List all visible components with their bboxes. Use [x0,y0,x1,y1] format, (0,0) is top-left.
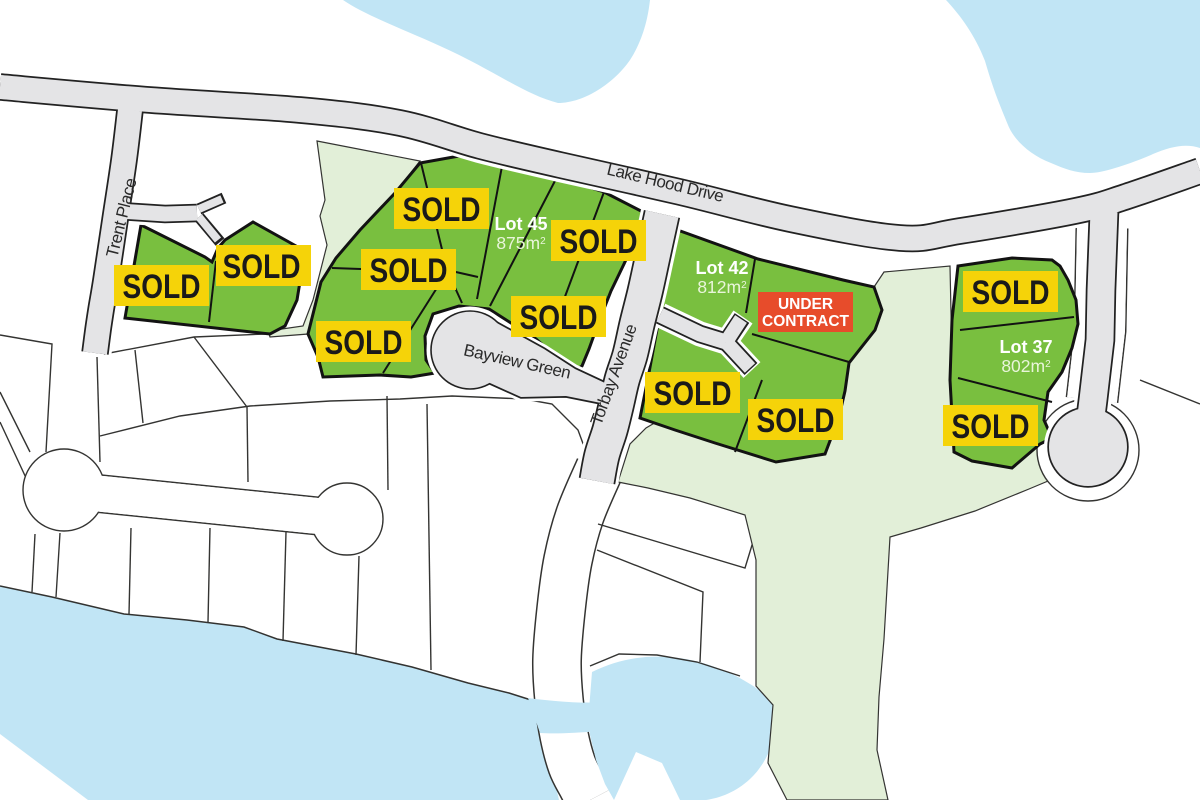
svg-text:SOLD: SOLD [654,375,732,413]
svg-text:SOLD: SOLD [560,223,638,261]
svg-text:875m2: 875m2 [496,233,546,253]
svg-text:CONTRACT: CONTRACT [762,313,849,330]
svg-text:Lot 37: Lot 37 [999,337,1052,357]
svg-text:SOLD: SOLD [972,274,1050,312]
svg-text:Lot 42: Lot 42 [695,258,748,278]
svg-text:SOLD: SOLD [123,268,201,306]
svg-text:SOLD: SOLD [520,299,598,337]
svg-text:SOLD: SOLD [223,248,301,286]
svg-text:SOLD: SOLD [325,324,403,362]
svg-text:SOLD: SOLD [403,191,481,229]
svg-text:802m2: 802m2 [1001,356,1051,376]
svg-text:UNDER: UNDER [778,296,833,313]
svg-text:Lot 45: Lot 45 [494,214,547,234]
svg-text:SOLD: SOLD [757,402,835,440]
svg-text:SOLD: SOLD [952,408,1030,446]
svg-text:SOLD: SOLD [370,252,448,290]
svg-text:812m2: 812m2 [697,277,747,297]
